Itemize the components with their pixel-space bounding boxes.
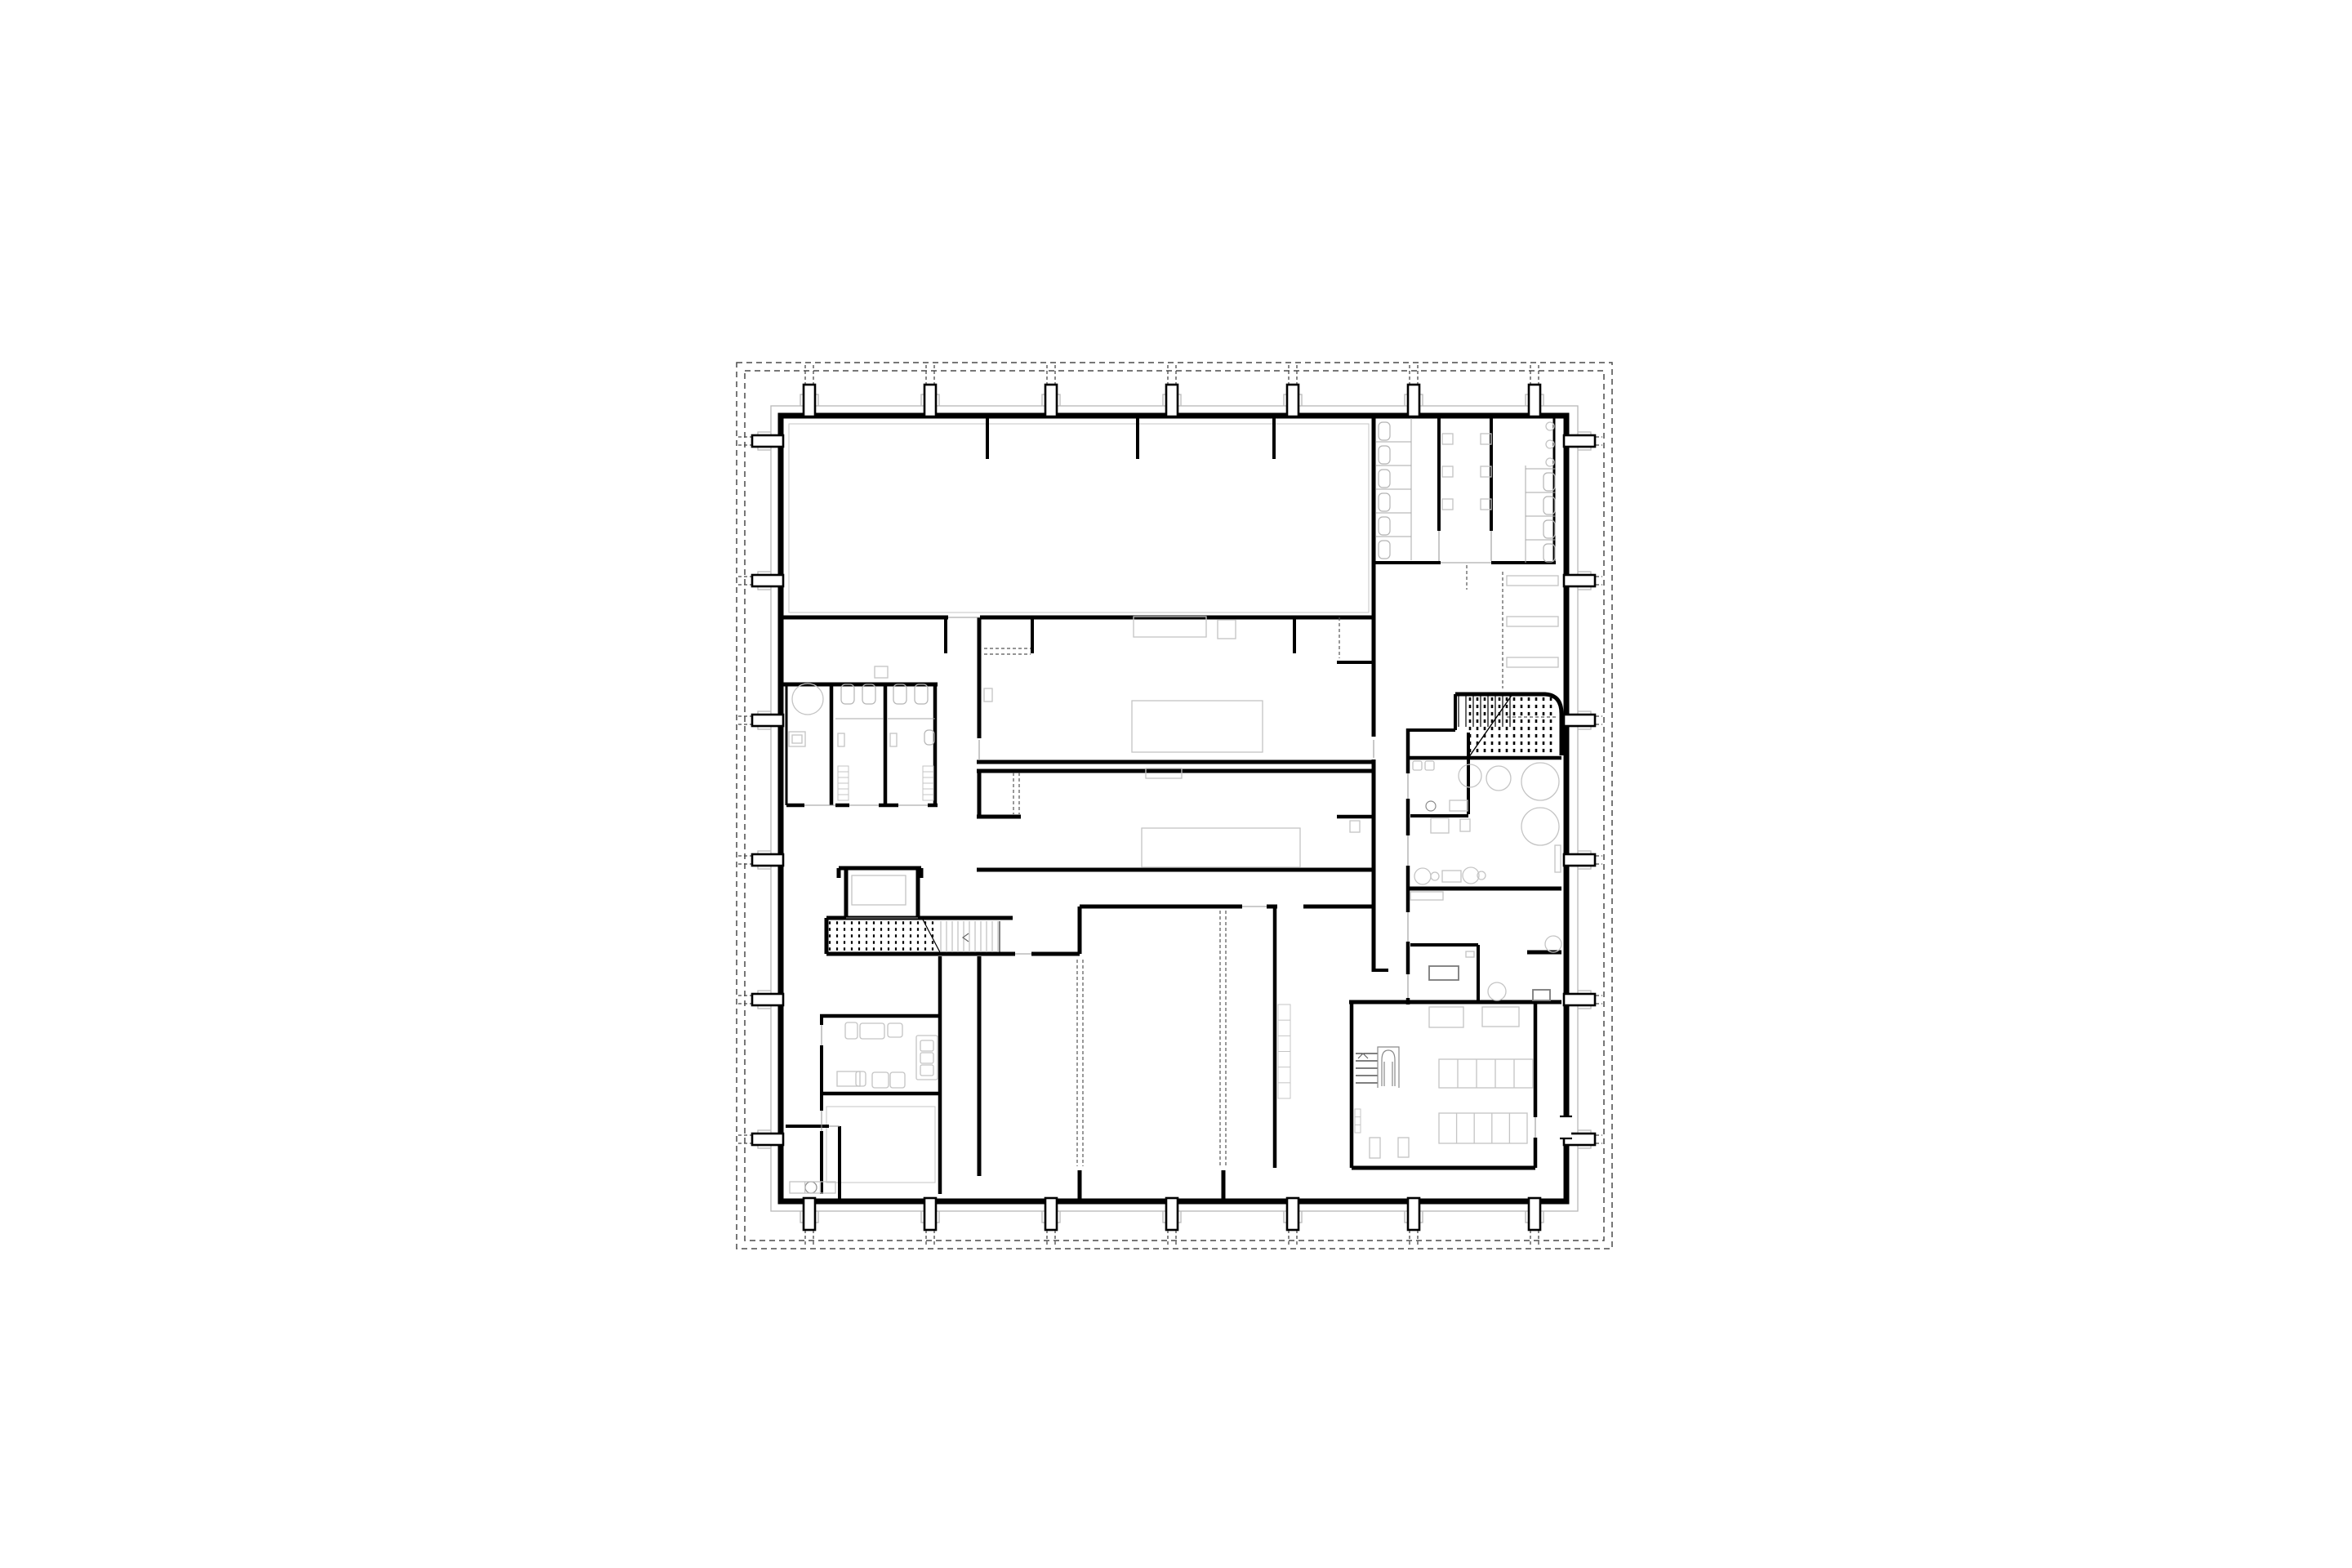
grid-marks bbox=[738, 365, 1602, 1247]
facade-notches bbox=[758, 394, 1591, 1223]
stair-curve bbox=[1455, 694, 1561, 755]
walls bbox=[783, 418, 1561, 1199]
floor-plan-svg bbox=[735, 359, 1617, 1254]
furniture bbox=[789, 434, 1561, 1158]
stair-treads-gray bbox=[941, 921, 998, 952]
stair-dots bbox=[829, 697, 1552, 951]
round-tables bbox=[792, 422, 1561, 1000]
sink-circles bbox=[805, 801, 1436, 1193]
inner-faces bbox=[789, 424, 1369, 1183]
outer-wall bbox=[781, 416, 1566, 1201]
exit-door-gap bbox=[1560, 1117, 1571, 1138]
facade-outline bbox=[771, 406, 1578, 1211]
toilet-fixtures bbox=[841, 422, 1555, 745]
page bbox=[0, 0, 2352, 1568]
floor-plan-sheet bbox=[735, 359, 1617, 1254]
stair-arrows bbox=[963, 933, 1368, 1058]
lift-machine bbox=[1378, 1047, 1399, 1088]
interior-dashed bbox=[984, 565, 1558, 1166]
stair-lines bbox=[923, 694, 1512, 954]
table-rows bbox=[790, 1059, 1533, 1193]
door-sills bbox=[804, 531, 1535, 1138]
partition-lines bbox=[835, 418, 1556, 719]
furniture-dark bbox=[1429, 966, 1550, 1000]
